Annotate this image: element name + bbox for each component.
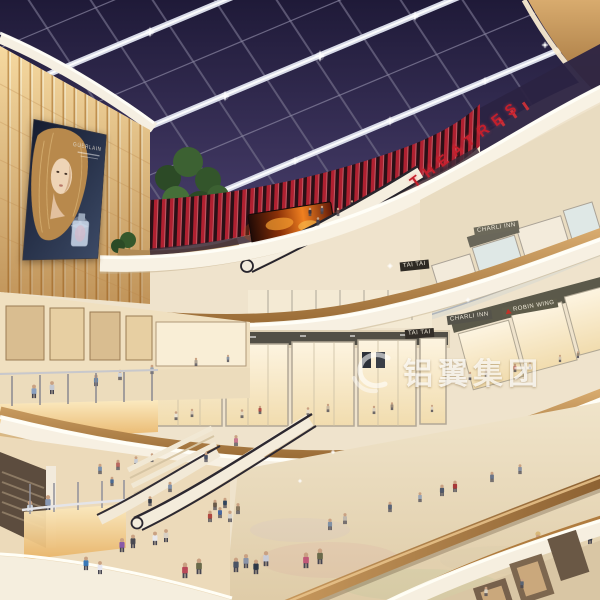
mall-atrium-scene: GUERLAIN THEATRES TAI TAI TAI TAI CHARLI… [0,0,600,600]
billboard-art: GUERLAIN [22,119,106,260]
scene-render [0,0,600,600]
robin-wing-logo-icon [505,308,512,314]
watermark-swirl-icon [352,348,398,394]
watermark: 铝翼集团 [352,348,543,394]
perfume-bottle-cap [78,213,85,221]
perfume-billboard: GUERLAIN [22,119,106,260]
tai-tai-label-upper: TAI TAI [403,261,426,270]
tai-tai-label-lower: TAI TAI [408,329,431,337]
watermark-text: 铝翼集团 [403,349,543,393]
